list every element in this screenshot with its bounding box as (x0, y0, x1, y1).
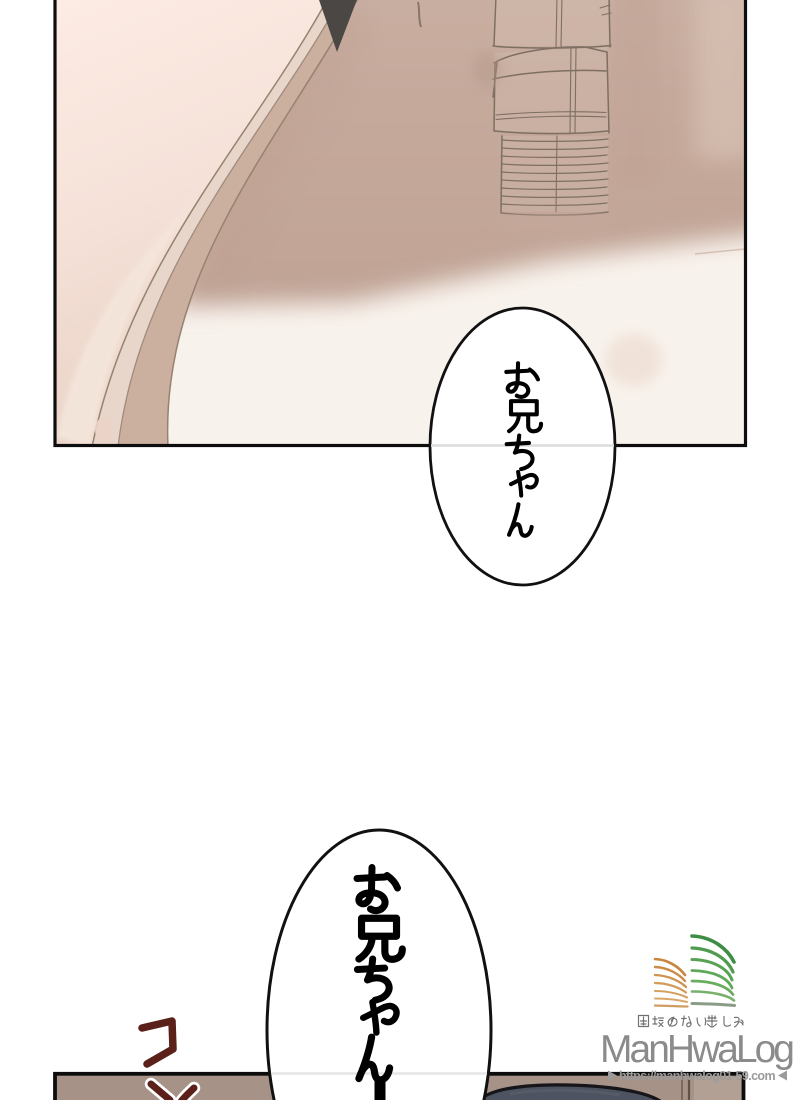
svg-text:https://manhwalog01-59.com: https://manhwalog01-59.com (619, 1069, 775, 1083)
svg-text:ManHwaLog: ManHwaLog (600, 1028, 793, 1071)
